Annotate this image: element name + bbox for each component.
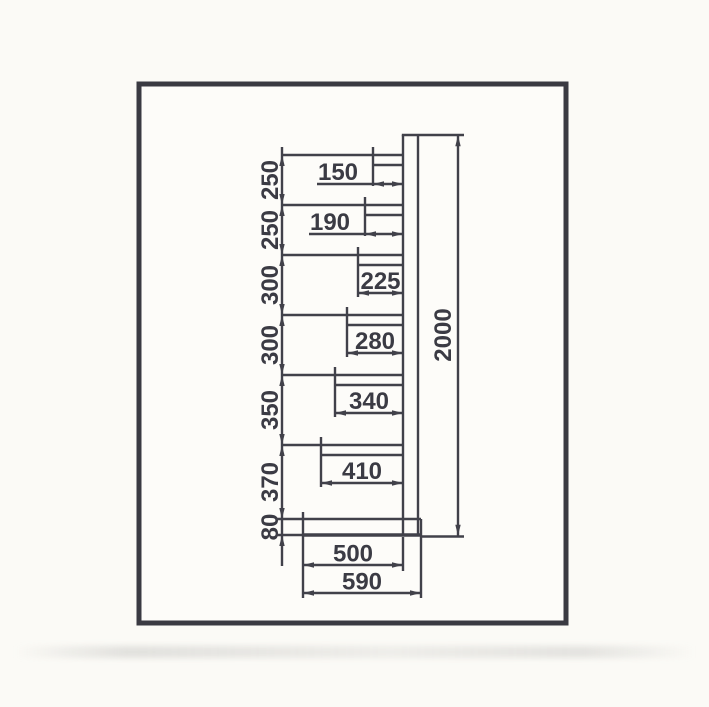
chain-segment-label: 350 — [257, 390, 284, 430]
scan-artifact-shadow — [0, 646, 709, 658]
scanned-drawing-page: 2000250250300300350370801501902252803404… — [0, 0, 709, 707]
shelf-dimension-label: 340 — [349, 388, 389, 415]
chain-segment-label: 80 — [257, 514, 284, 541]
base-total-depth-dimension-label: 590 — [342, 569, 382, 596]
chain-segment-label: 300 — [257, 325, 284, 365]
shelf-dimension-label: 190 — [310, 209, 350, 236]
chain-segment-label: 250 — [257, 210, 284, 250]
chain-segment-label: 370 — [257, 462, 284, 502]
shelf-dimension-label: 410 — [342, 458, 382, 485]
shelf-dimension-label: 280 — [355, 328, 395, 355]
chain-segment-label: 250 — [257, 160, 284, 200]
base-depth-dimension-label: 500 — [333, 541, 373, 568]
shelf-upright-dimension-drawing: 2000250250300300350370801501902252803404… — [0, 0, 709, 707]
height-dimension-label: 2000 — [430, 308, 457, 361]
chain-segment-label: 300 — [257, 265, 284, 305]
shelf-dimension-label: 150 — [318, 159, 358, 186]
